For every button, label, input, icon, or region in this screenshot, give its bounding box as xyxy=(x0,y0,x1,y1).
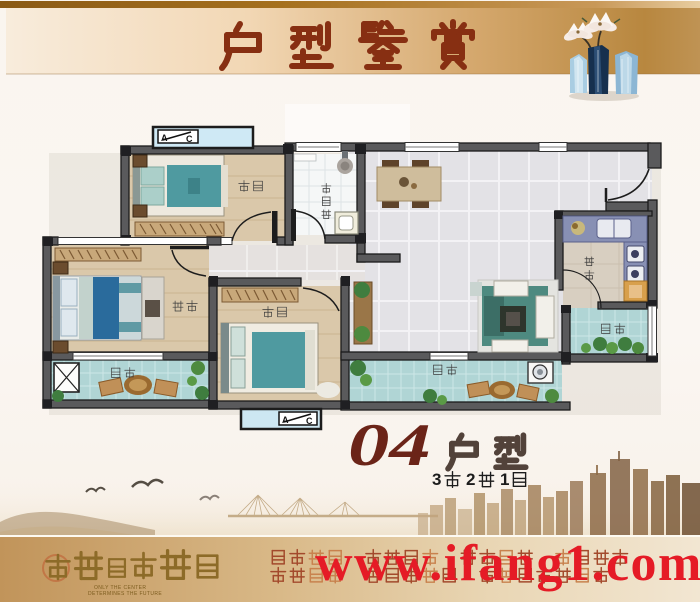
svg-text:3: 3 xyxy=(432,470,441,489)
svg-text:A: A xyxy=(161,133,168,143)
svg-text:C: C xyxy=(306,416,313,426)
svg-text:A: A xyxy=(282,415,289,425)
svg-text:1: 1 xyxy=(500,470,509,489)
svg-text:DETERMINES THE FUTURE: DETERMINES THE FUTURE xyxy=(88,591,162,597)
svg-text:2: 2 xyxy=(466,470,475,489)
svg-text:C: C xyxy=(186,134,193,144)
